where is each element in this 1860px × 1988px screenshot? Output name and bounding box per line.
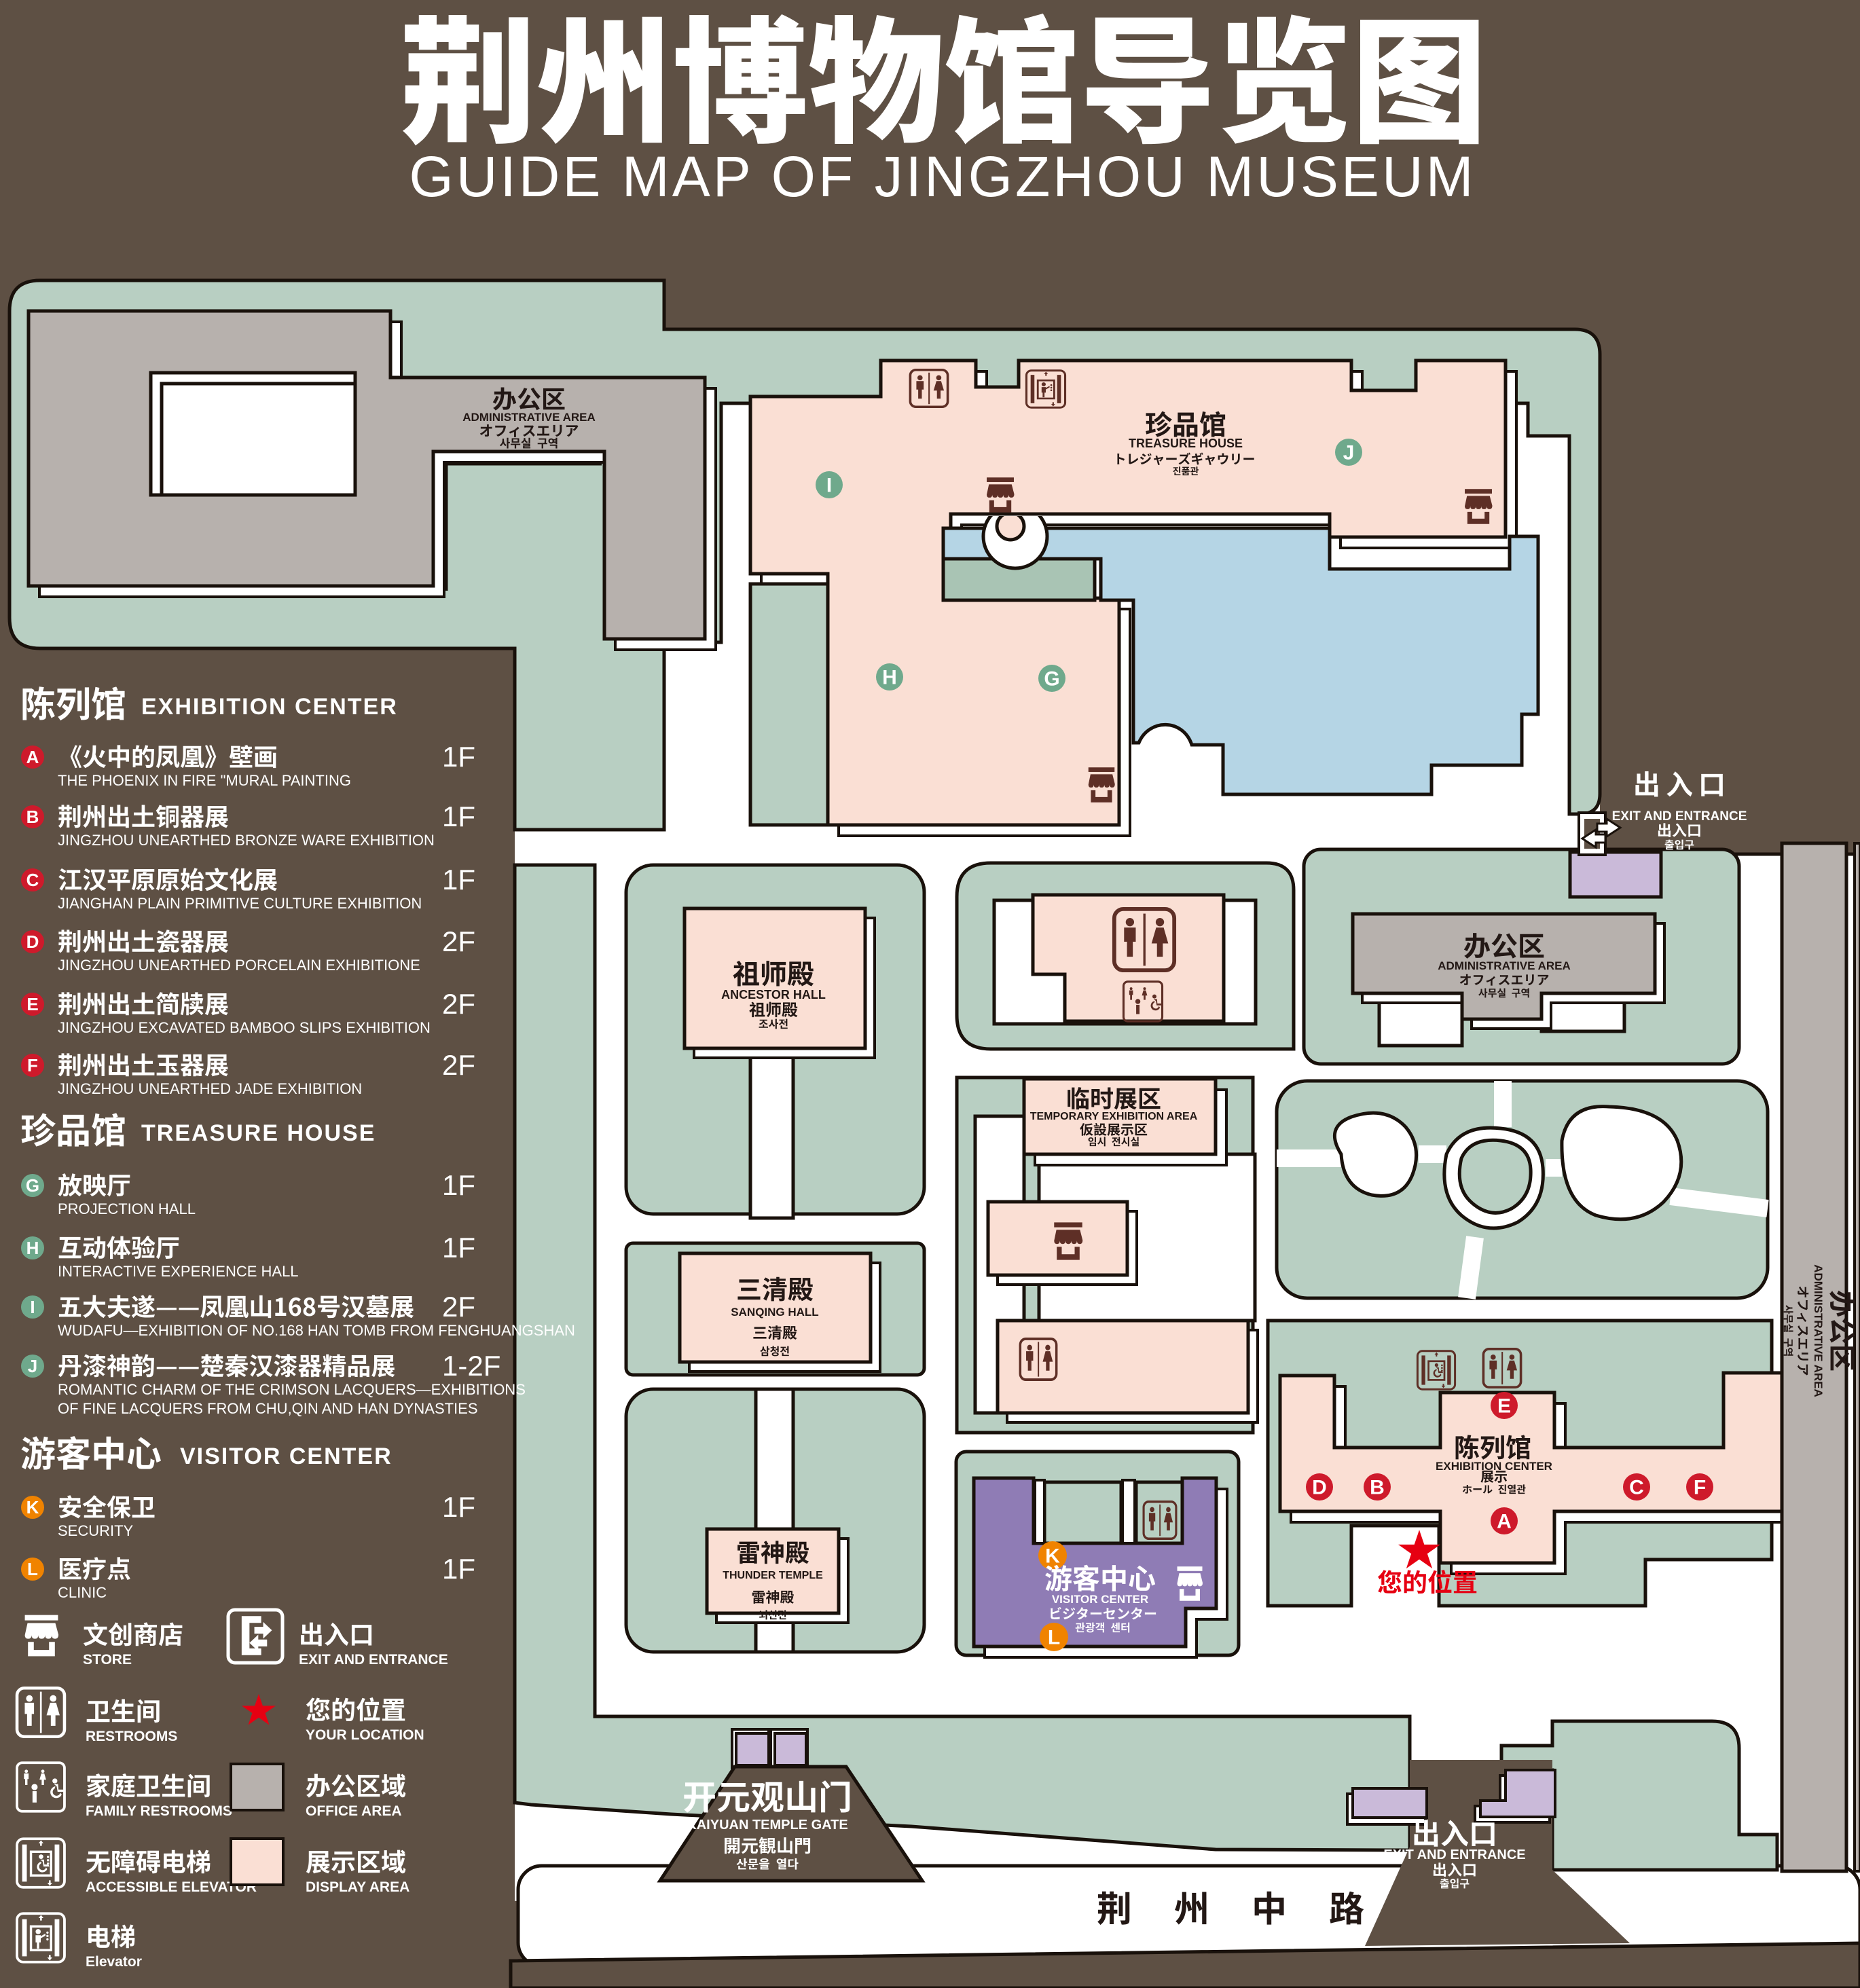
- svg-text:YOUR LOCATION: YOUR LOCATION: [306, 1727, 424, 1743]
- svg-text:J: J: [1343, 442, 1355, 464]
- svg-text:B: B: [1370, 1477, 1385, 1499]
- svg-text:1F: 1F: [442, 1553, 475, 1585]
- svg-text:CLINIC: CLINIC: [58, 1584, 107, 1601]
- svg-text:JINGZHOU EXCAVATED BAMBOO SLIP: JINGZHOU EXCAVATED BAMBOO SLIPS EXHIBITI…: [58, 1019, 431, 1036]
- svg-text:1F: 1F: [442, 741, 475, 773]
- svg-text:TREASURE HOUSE: TREASURE HOUSE: [141, 1120, 376, 1146]
- svg-text:INTERACTIVE EXPERIENCE HALL: INTERACTIVE EXPERIENCE HALL: [58, 1263, 299, 1280]
- svg-text:G: G: [1044, 668, 1059, 691]
- svg-text:L: L: [1048, 1627, 1060, 1649]
- svg-text:EXIT AND ENTRANCE: EXIT AND ENTRANCE: [1612, 809, 1747, 824]
- svg-text:1F: 1F: [442, 1169, 475, 1201]
- svg-text:1-2F: 1-2F: [442, 1350, 500, 1382]
- svg-text:KAIYUAN TEMPLE GATE: KAIYUAN TEMPLE GATE: [687, 1818, 847, 1833]
- svg-text:D: D: [1312, 1477, 1327, 1499]
- svg-text:F: F: [1694, 1477, 1706, 1499]
- svg-text:EXIT AND ENTRANCE: EXIT AND ENTRANCE: [299, 1652, 448, 1668]
- svg-text:VISITOR CENTER: VISITOR CENTER: [180, 1443, 393, 1469]
- svg-text:H: H: [26, 1238, 39, 1258]
- svg-text:EXHIBITION CENTER: EXHIBITION CENTER: [141, 694, 398, 720]
- svg-text:I: I: [826, 475, 832, 497]
- svg-text:B: B: [26, 807, 39, 827]
- svg-text:SANQING HALL: SANQING HALL: [731, 1306, 818, 1319]
- svg-text:E: E: [26, 994, 38, 1014]
- svg-text:ROMANTIC CHARM OF THE CRIMSON: ROMANTIC CHARM OF THE CRIMSON LACQUERS—E…: [58, 1381, 526, 1398]
- svg-text:A: A: [26, 747, 39, 767]
- svg-text:TEMPORARY EXHIBITION AREA: TEMPORARY EXHIBITION AREA: [1030, 1111, 1198, 1122]
- svg-text:1F: 1F: [442, 1491, 475, 1523]
- svg-text:THUNDER TEMPLE: THUNDER TEMPLE: [723, 1570, 823, 1581]
- svg-text:2F: 2F: [442, 1049, 475, 1081]
- svg-text:PROJECTION HALL: PROJECTION HALL: [58, 1200, 196, 1217]
- svg-text:STORE: STORE: [83, 1652, 132, 1668]
- svg-text:L: L: [27, 1559, 38, 1579]
- svg-text:1F: 1F: [442, 1232, 475, 1264]
- svg-text:H: H: [882, 667, 897, 689]
- svg-text:2F: 2F: [442, 1291, 475, 1323]
- svg-text:GUIDE MAP OF JINGZHOU MUSEUM: GUIDE MAP OF JINGZHOU MUSEUM: [409, 145, 1476, 208]
- svg-text:K: K: [26, 1497, 39, 1517]
- svg-text:2F: 2F: [442, 925, 475, 957]
- svg-text:E: E: [1497, 1395, 1511, 1418]
- svg-text:OF FINE LACQUERS FROM CHU,QIN: OF FINE LACQUERS FROM CHU,QIN AND HAN DY…: [58, 1400, 478, 1417]
- svg-text:Elevator: Elevator: [86, 1954, 142, 1970]
- svg-text:WUDAFU—EXHIBITION OF NO.168 HA: WUDAFU—EXHIBITION OF NO.168 HAN TOMB FRO…: [58, 1322, 575, 1339]
- svg-text:C: C: [1629, 1477, 1644, 1499]
- svg-text:JINGZHOU UNEARTHED JADE EXHIBI: JINGZHOU UNEARTHED JADE EXHIBITION: [58, 1080, 362, 1097]
- svg-text:FAMILY RESTROOMS: FAMILY RESTROOMS: [86, 1803, 232, 1819]
- svg-text:F: F: [27, 1055, 38, 1075]
- svg-text:ADMINISTRATIVE AREA: ADMINISTRATIVE AREA: [462, 411, 596, 424]
- svg-text:RESTROOMS: RESTROOMS: [86, 1729, 177, 1744]
- svg-text:C: C: [26, 870, 39, 890]
- svg-text:THE PHOENIX IN FIRE "MURAL PAI: THE PHOENIX IN FIRE "MURAL PAINTING: [58, 772, 351, 789]
- svg-text:1F: 1F: [442, 864, 475, 896]
- svg-text:VISITOR CENTER: VISITOR CENTER: [1052, 1593, 1148, 1606]
- svg-text:G: G: [26, 1175, 39, 1196]
- svg-text:ADMINISTRATIVE AREA: ADMINISTRATIVE AREA: [1438, 959, 1571, 972]
- svg-text:K: K: [1045, 1545, 1060, 1568]
- svg-text:EXIT AND ENTRANCE: EXIT AND ENTRANCE: [1383, 1847, 1525, 1862]
- svg-text:TREASURE HOUSE: TREASURE HOUSE: [1129, 437, 1243, 450]
- svg-text:2F: 2F: [442, 988, 475, 1020]
- svg-text:JINGZHOU UNEARTHED PORCELAIN E: JINGZHOU UNEARTHED PORCELAIN EXHIBITIONE: [58, 957, 420, 974]
- svg-text:JINGZHOU UNEARTHED BRONZE WARE: JINGZHOU UNEARTHED BRONZE WARE EXHIBITIO…: [58, 832, 435, 849]
- svg-text:J: J: [28, 1356, 37, 1376]
- svg-text:OFFICE AREA: OFFICE AREA: [306, 1803, 402, 1819]
- svg-text:1F: 1F: [442, 800, 475, 832]
- svg-text:DISPLAY AREA: DISPLAY AREA: [306, 1879, 409, 1895]
- svg-text:D: D: [26, 932, 39, 952]
- svg-text:ADMINISTRATIVE AREA: ADMINISTRATIVE AREA: [1812, 1264, 1825, 1397]
- svg-text:A: A: [1497, 1511, 1512, 1533]
- svg-text:JIANGHAN PLAIN PRIMITIVE CULTU: JIANGHAN PLAIN PRIMITIVE CULTURE EXHIBIT…: [58, 895, 422, 912]
- svg-text:ANCESTOR HALL: ANCESTOR HALL: [721, 988, 826, 1001]
- svg-text:EXHIBITION CENTER: EXHIBITION CENTER: [1436, 1460, 1552, 1473]
- svg-text:SECURITY: SECURITY: [58, 1522, 134, 1539]
- svg-text:I: I: [30, 1297, 35, 1317]
